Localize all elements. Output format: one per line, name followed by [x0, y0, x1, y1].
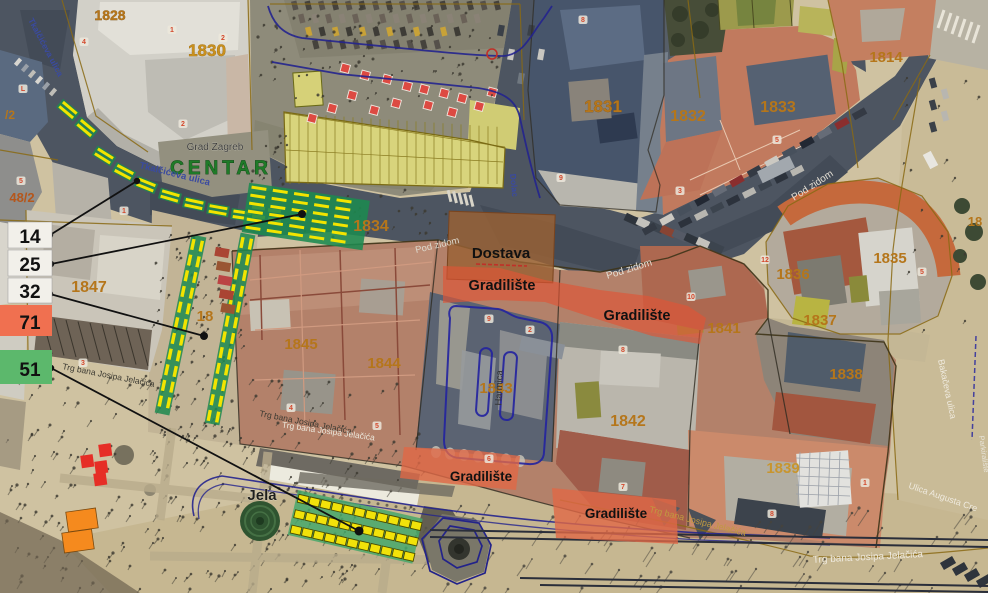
svg-text:Dostava: Dostava — [472, 245, 531, 262]
svg-text:Harmica: Harmica — [493, 369, 505, 405]
svg-text:1: 1 — [122, 208, 126, 215]
svg-text:1841: 1841 — [707, 320, 740, 337]
svg-text:1828: 1828 — [94, 7, 125, 23]
svg-text:1: 1 — [863, 480, 867, 487]
svg-text:1830: 1830 — [188, 41, 226, 60]
svg-text:9: 9 — [559, 175, 563, 182]
svg-text:Gradilište: Gradilište — [450, 469, 513, 484]
svg-text:8: 8 — [621, 347, 625, 354]
svg-text:1834: 1834 — [353, 218, 389, 235]
svg-text:1814: 1814 — [869, 49, 903, 66]
svg-text:1836: 1836 — [776, 266, 809, 283]
svg-text:5: 5 — [375, 423, 379, 430]
svg-text:2: 2 — [181, 121, 185, 128]
svg-text:2: 2 — [221, 35, 225, 42]
svg-text:12: 12 — [761, 257, 769, 264]
svg-text:Gradilište: Gradilište — [604, 308, 671, 324]
svg-text:5: 5 — [775, 137, 779, 144]
svg-text:2: 2 — [528, 327, 532, 334]
svg-text:8: 8 — [581, 17, 585, 24]
svg-text:1839: 1839 — [766, 460, 799, 477]
svg-text:1844: 1844 — [367, 355, 401, 372]
svg-text:Grad Zagreb: Grad Zagreb — [187, 142, 244, 153]
svg-text:14: 14 — [19, 227, 41, 248]
svg-text:18: 18 — [197, 308, 214, 325]
svg-text:1838: 1838 — [829, 366, 862, 383]
svg-text:3: 3 — [81, 360, 85, 367]
svg-text:8: 8 — [770, 511, 774, 518]
svg-text:32: 32 — [19, 282, 40, 303]
svg-text:10: 10 — [687, 294, 695, 301]
svg-text:51: 51 — [19, 360, 41, 381]
svg-text:9: 9 — [487, 316, 491, 323]
svg-text:1: 1 — [170, 27, 174, 34]
svg-text:4: 4 — [289, 405, 293, 412]
svg-text:1835: 1835 — [873, 250, 906, 267]
svg-text:1847: 1847 — [71, 279, 107, 296]
svg-text:Gradilište: Gradilište — [585, 506, 648, 521]
svg-text:5: 5 — [19, 178, 23, 185]
svg-text:1837: 1837 — [803, 312, 836, 329]
svg-text:4: 4 — [82, 39, 86, 46]
svg-text:7: 7 — [621, 484, 625, 491]
svg-text:1845: 1845 — [284, 336, 317, 353]
svg-text:Jela: Jela — [247, 487, 277, 504]
svg-text:1832: 1832 — [670, 108, 706, 125]
svg-text:1831: 1831 — [584, 97, 622, 116]
svg-text:18: 18 — [968, 214, 982, 229]
svg-text:3: 3 — [678, 188, 682, 195]
svg-text:L: L — [21, 86, 26, 93]
svg-text:5: 5 — [920, 269, 924, 276]
svg-text:1833: 1833 — [760, 99, 796, 116]
svg-text:Gradilište: Gradilište — [469, 278, 536, 294]
svg-text:25: 25 — [19, 255, 41, 276]
svg-text:48/2: 48/2 — [9, 190, 34, 205]
svg-text:6: 6 — [487, 456, 491, 463]
svg-text:71: 71 — [19, 313, 41, 334]
svg-text:/2: /2 — [5, 108, 15, 122]
svg-text:1842: 1842 — [610, 413, 646, 430]
